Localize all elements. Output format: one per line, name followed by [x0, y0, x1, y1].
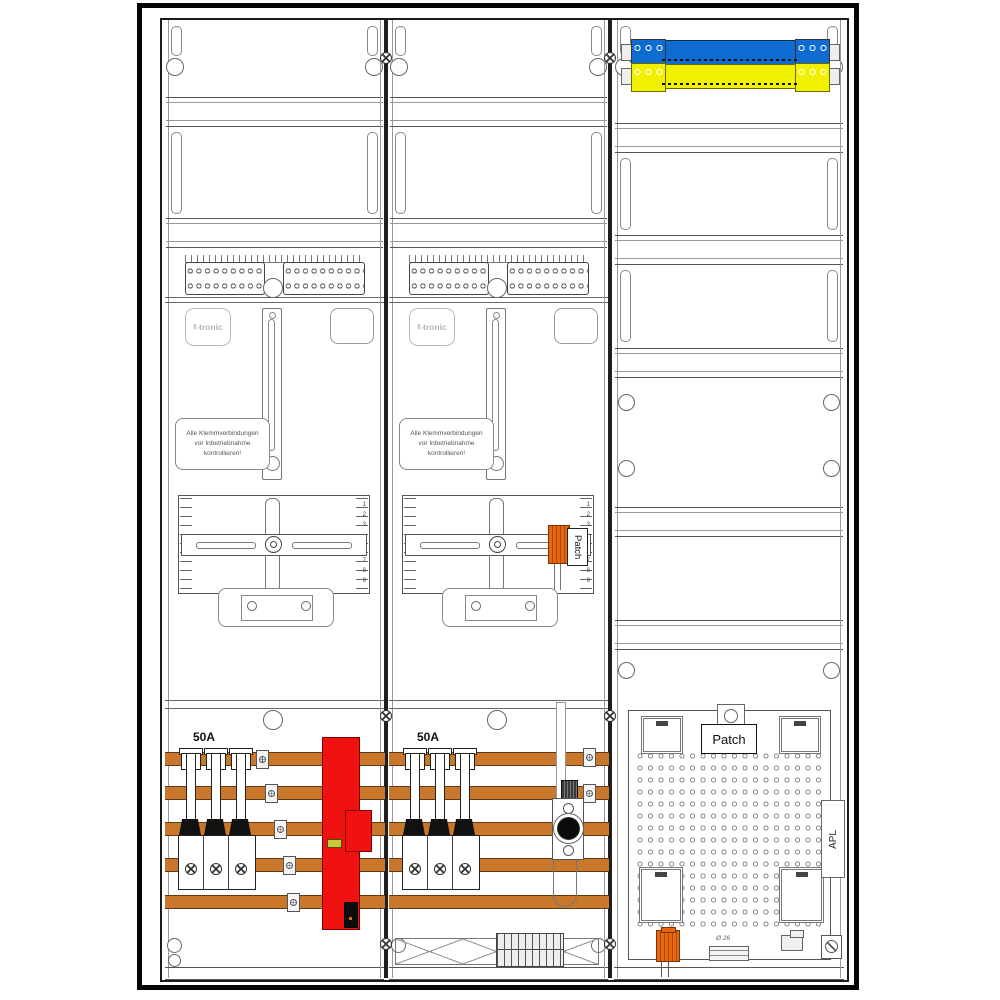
connector-pins — [661, 961, 671, 977]
main-switch-attachment — [345, 810, 372, 852]
brand-logo-text: f-tronic — [193, 322, 222, 332]
rail-hole — [618, 460, 635, 477]
brand-logo: f-tronic — [409, 308, 455, 346]
busbar-clamp — [256, 750, 269, 769]
panel-edge-line — [165, 297, 384, 298]
breaker-toggle — [229, 819, 251, 835]
rail-hole — [167, 938, 182, 953]
joint-screw — [604, 710, 616, 722]
rail-slot — [620, 270, 631, 342]
divider-band — [166, 218, 383, 248]
joint-screw — [380, 52, 392, 64]
bracket-screw — [247, 601, 257, 611]
apl-bracket — [641, 716, 683, 754]
gland-screw-top — [563, 803, 574, 814]
meter-mounting-cross: 1 2 3 7 8 9 — [178, 495, 370, 594]
scale-number: 3 — [363, 522, 366, 528]
rail-hole — [166, 58, 184, 76]
mounting-hole — [487, 710, 507, 730]
rail-hole — [618, 662, 635, 679]
rail-hole — [618, 394, 635, 411]
busbar-clamp — [287, 893, 300, 912]
warning-line: vor Inbetriebnahme — [194, 439, 250, 449]
rail-hole — [823, 394, 840, 411]
scale-number: 1 — [363, 502, 366, 508]
apl-cable-part — [709, 946, 749, 961]
column-meter-middle: f-tronic Alle Klemmverbindungen vor Inbe… — [387, 20, 610, 978]
breaker-rating-label: 50A — [417, 730, 439, 744]
busbar-clamp — [583, 784, 596, 803]
apl-bracket — [779, 716, 821, 754]
divider-band — [390, 218, 607, 248]
breaker-screw — [235, 863, 247, 875]
column-distribution-right: Patch APL Ø 26 — [611, 20, 846, 978]
divider-band — [615, 620, 843, 650]
busbar-clamp — [583, 748, 596, 767]
apl-bracket — [779, 867, 824, 923]
pe-rail-dashes — [662, 83, 799, 85]
rail-slot — [591, 132, 602, 214]
n-terminal-rail-blue — [631, 40, 830, 65]
scale-number: 8 — [363, 568, 366, 574]
rail-slot — [395, 132, 406, 214]
rail-slot — [827, 270, 838, 342]
warning-line: kontrollieren! — [204, 449, 241, 459]
bottom-rail — [614, 967, 844, 980]
cross-center-knob — [265, 536, 282, 553]
bottom-rail — [389, 967, 608, 980]
terminal-strip — [496, 933, 564, 967]
panel-edge-line — [165, 708, 384, 709]
cross-center-knob — [489, 536, 506, 553]
gland-screw-bottom — [563, 845, 574, 856]
scale-number: 1 — [587, 502, 590, 508]
mounting-hole — [263, 710, 283, 730]
bracket-screw — [471, 601, 481, 611]
warning-line: Alle Klemmverbindungen — [410, 429, 482, 439]
patch-module-label: Patch — [567, 528, 588, 566]
patch-wires — [554, 562, 564, 590]
divider-band — [615, 123, 843, 153]
rail-slot — [171, 132, 182, 214]
pe-rail-end-block — [795, 63, 830, 92]
rail-slot — [171, 26, 182, 56]
terminal-block — [409, 262, 489, 295]
slot-hole-top — [269, 312, 276, 319]
rail-slot — [367, 26, 378, 56]
cable-gland-device — [552, 798, 584, 860]
rail-hole — [390, 58, 408, 76]
patch-field-label: Patch — [701, 724, 757, 754]
warning-line: kontrollieren! — [428, 449, 465, 459]
scale-number: 9 — [363, 578, 366, 584]
joint-screw — [380, 710, 392, 722]
inline-fuse — [561, 780, 578, 800]
mounting-hole — [487, 278, 507, 298]
breaker-toggle — [428, 819, 450, 835]
joint-screw — [604, 938, 616, 950]
joint-screw — [604, 52, 616, 64]
apl-step-part — [781, 935, 803, 951]
breaker-screw — [434, 863, 446, 875]
rail-slot — [292, 542, 352, 549]
busbar-clamp — [265, 784, 278, 803]
warning-label: Alle Klemmverbindungen vor Inbetriebnahm… — [399, 418, 494, 470]
scale-number: 7 — [363, 558, 366, 564]
warning-line: Alle Klemmverbindungen — [186, 429, 258, 439]
n-rail-dashes — [662, 59, 799, 61]
rail-hole — [823, 662, 840, 679]
panel-edge-line — [389, 708, 608, 709]
rail-slot — [395, 26, 406, 56]
scale-number: 2 — [363, 512, 366, 518]
gland-cable-hole — [557, 817, 580, 840]
meter-bracket — [218, 588, 334, 627]
divider-band — [390, 97, 607, 127]
breaker-screw — [409, 863, 421, 875]
pe-terminal-rail-yellow — [631, 64, 830, 89]
terminal-block — [283, 262, 365, 295]
breaker-screw — [459, 863, 471, 875]
wire-loop — [553, 856, 577, 907]
panel-edge-line — [389, 302, 608, 303]
terminal-block — [507, 262, 589, 295]
divider-band — [615, 348, 843, 378]
main-switch-window — [344, 902, 358, 928]
divider-band — [615, 507, 843, 537]
breaker-screw — [185, 863, 197, 875]
panel-edge-line — [165, 302, 384, 303]
mounting-hole — [263, 278, 283, 298]
breaker-toggle — [179, 819, 201, 835]
rail-slot — [196, 542, 256, 549]
rail-slot — [591, 26, 602, 56]
panel-edge-line — [165, 700, 384, 701]
main-switch-indicator — [327, 839, 342, 848]
divider-band — [166, 97, 383, 127]
scale-number: 9 — [587, 578, 590, 584]
busbar-clamp — [283, 856, 296, 875]
breaker-toggle — [453, 819, 475, 835]
terminal-block — [185, 262, 265, 295]
bracket-screw — [525, 601, 535, 611]
rail-end-clamp — [829, 44, 840, 61]
bottom-rail — [165, 967, 384, 980]
pe-rail-end-block — [631, 63, 666, 92]
scale-number: 8 — [587, 568, 590, 574]
meter-bracket — [442, 588, 558, 627]
rail-slot — [367, 132, 378, 214]
breaker-toggle — [204, 819, 226, 835]
blank-plate — [330, 308, 374, 344]
slot-hole-top — [493, 312, 500, 319]
diameter-label: Ø 26 — [716, 935, 730, 942]
column-meter-left: f-tronic Alle Klemmverbindungen vor Inbe… — [163, 20, 387, 978]
warning-line: vor Inbetriebnahme — [418, 439, 474, 449]
warning-label: Alle Klemmverbindungen vor Inbetriebnahm… — [175, 418, 270, 470]
apl-text: APL — [828, 830, 839, 849]
breaker-toggle — [403, 819, 425, 835]
breaker-screw — [210, 863, 222, 875]
brand-logo-text: f-tronic — [417, 322, 446, 332]
apl-connector-orange — [656, 930, 680, 962]
brand-logo: f-tronic — [185, 308, 231, 346]
panel-edge-line — [389, 700, 608, 701]
busbar-clamp — [274, 820, 287, 839]
breaker-rating-label: 50A — [193, 730, 215, 744]
rail-slot — [827, 158, 838, 230]
divider-band — [615, 235, 843, 265]
rail-slot — [620, 158, 631, 230]
joint-screw — [380, 938, 392, 950]
meter-cabinet-drawing: f-tronic Alle Klemmverbindungen vor Inbe… — [0, 0, 1000, 1000]
patch-module-text: Patch — [572, 535, 583, 559]
patch-field-text: Patch — [712, 732, 745, 747]
rail-hole — [168, 954, 181, 967]
apl-bracket — [639, 867, 683, 923]
scale-number: 2 — [587, 512, 590, 518]
rail-end-clamp — [829, 68, 840, 85]
blank-plate — [554, 308, 598, 344]
panel-edge-line — [389, 297, 608, 298]
apl-side-strip: APL — [821, 800, 845, 878]
bracket-screw — [301, 601, 311, 611]
rail-slot — [420, 542, 480, 549]
rail-hole — [823, 460, 840, 477]
apl-screw-device — [821, 935, 842, 959]
